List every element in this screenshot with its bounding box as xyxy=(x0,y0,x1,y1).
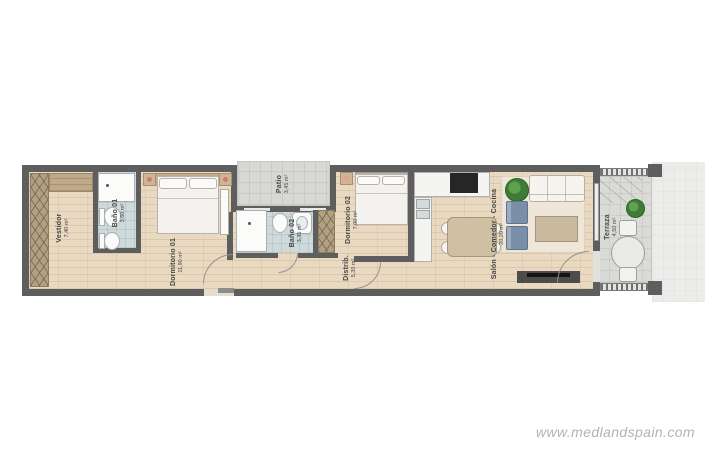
room-name: Terraza xyxy=(604,214,612,240)
shower-01-drain-icon xyxy=(106,184,109,187)
wall-patio-right xyxy=(330,165,336,212)
wall-bano02-bottom-right xyxy=(298,253,338,258)
room-area: 11,90 m² xyxy=(178,238,184,286)
sofa-icon xyxy=(529,175,585,202)
terrace-table-icon xyxy=(611,236,645,270)
bidet-01-tank-icon xyxy=(99,233,105,249)
vestidor-wardrobe-icon xyxy=(30,173,49,287)
pillow-02-right-icon xyxy=(382,176,405,185)
room-label-terraza: Terraza 4,50 m² xyxy=(604,214,618,240)
cooktop-icon xyxy=(450,173,478,193)
kitchen-sink-icon xyxy=(416,199,430,209)
terrace-chair-icon xyxy=(619,220,637,236)
room-area: 5,35 m² xyxy=(351,255,357,281)
room-name: Dormitorio 01 xyxy=(170,238,178,286)
terrace-post-top xyxy=(648,164,662,177)
room-area: 3,45 m² xyxy=(284,175,290,194)
room-label-bano-02: Baño 02 3,35 m² xyxy=(289,219,303,248)
wall-bano02-bottom-left xyxy=(236,253,278,258)
wall-left xyxy=(22,165,29,296)
nightstand-01-right-lamp-icon xyxy=(223,177,228,182)
vestidor-shelf-icon xyxy=(49,173,93,192)
entrance-door-leaf xyxy=(218,288,234,293)
nightstand-02-lamp-icon xyxy=(344,176,349,181)
room-area: 4,50 m² xyxy=(612,214,618,240)
room-area: 20,20 m² xyxy=(499,189,505,279)
wardrobe-01-icon xyxy=(220,189,229,235)
room-label-salon: Salón - Comedor - Cocina 20,20 m² xyxy=(491,189,505,279)
room-name: Baño 01 xyxy=(112,199,120,228)
room-name: Patio xyxy=(276,175,284,194)
wall-bottom xyxy=(22,289,600,296)
wall-bano01-dorm01 xyxy=(136,172,141,253)
pillow-02-left-icon xyxy=(357,176,380,185)
wall-top-right xyxy=(330,165,600,172)
dining-table-icon xyxy=(447,217,497,257)
room-label-dormitorio-01: Dormitorio 01 11,90 m² xyxy=(170,238,184,286)
room-area: 7,00 m² xyxy=(353,196,359,244)
floor-plan: Vestidor 7,40 m² Baño 01 3,60 m² Dormito… xyxy=(0,0,705,454)
room-label-bano-01: Baño 01 3,60 m² xyxy=(112,199,126,228)
terrace-post-bottom xyxy=(648,281,662,295)
shower-02-drain-icon xyxy=(248,222,251,225)
room-area: 3,35 m² xyxy=(297,219,303,248)
room-area: 7,40 m² xyxy=(64,213,70,242)
terrace-railing-bottom xyxy=(600,283,650,291)
terrace-door-gap xyxy=(593,251,600,282)
armchair-icon xyxy=(506,226,528,250)
living-window xyxy=(594,183,599,241)
room-area: 3,60 m² xyxy=(120,199,126,228)
armchair-icon xyxy=(506,201,528,224)
wardrobe-02-icon xyxy=(318,210,335,253)
shower-01-icon xyxy=(98,173,135,202)
terrace-railing-top xyxy=(600,168,650,176)
kitchen-sink-2-icon xyxy=(416,210,430,219)
room-label-vestidor: Vestidor 7,40 m² xyxy=(56,213,70,242)
toilet-01-tank-icon xyxy=(99,208,105,226)
wall-top-left xyxy=(22,165,237,172)
terrace-chair-icon xyxy=(619,267,637,282)
room-name: Baño 02 xyxy=(289,219,297,248)
room-label-distribuidor: Distrib. 5,35 m² xyxy=(343,255,357,281)
watermark: www.medlandspain.com xyxy=(536,424,695,440)
plant-icon xyxy=(505,178,529,202)
room-name: Dormitorio 02 xyxy=(345,196,353,244)
coffee-table-icon xyxy=(535,216,578,242)
room-label-dormitorio-02: Dormitorio 02 7,00 m² xyxy=(345,196,359,244)
room-name: Vestidor xyxy=(56,213,64,242)
pillow-01-left-icon xyxy=(159,178,187,189)
room-label-patio: Patio 3,45 m² xyxy=(276,175,290,194)
bidet-01-icon xyxy=(104,232,120,250)
nightstand-01-left-lamp-icon xyxy=(147,177,152,182)
room-name: Salón - Comedor - Cocina xyxy=(491,189,499,279)
room-name: Distrib. xyxy=(343,255,351,281)
terrace-plant-icon xyxy=(626,199,645,218)
pillow-01-right-icon xyxy=(189,178,217,189)
shower-02-icon xyxy=(236,210,267,252)
